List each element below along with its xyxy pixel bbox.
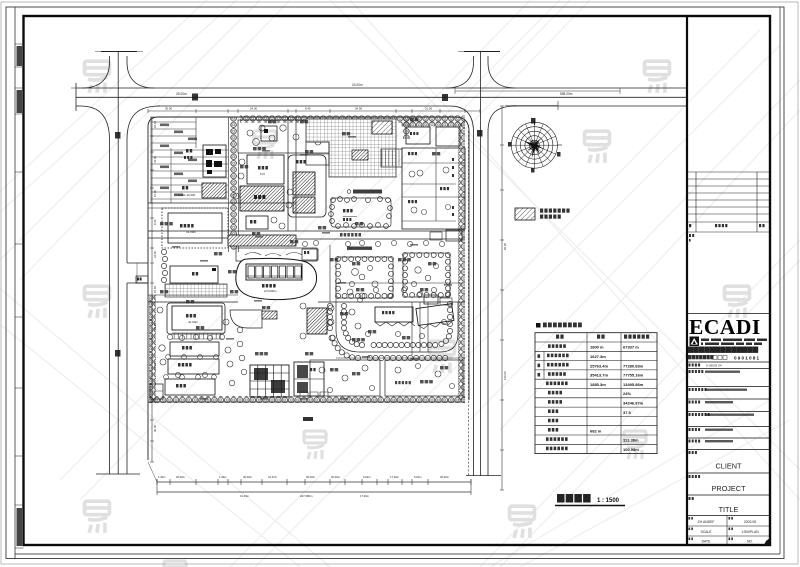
svg-text:1627.3m: 1627.3m [590,354,606,359]
svg-text:30.00m: 30.00m [176,475,186,479]
svg-text:5.00m: 5.00m [414,475,422,479]
svg-text:SCALE: SCALE [700,530,712,534]
svg-text:100.98m: 100.98m [623,447,639,452]
svg-text:31.00m: 31.00m [240,494,250,498]
svg-text:NO.: NO. [747,540,753,544]
svg-text:24%: 24% [623,391,631,396]
svg-text:24.00: 24.00 [250,107,257,111]
svg-text:37.5: 37.5 [623,410,632,415]
svg-text:1885.3m: 1885.3m [590,382,606,387]
svg-text:9.00m: 9.00m [363,475,371,479]
svg-text:2003.05: 2003.05 [744,520,756,524]
svg-text:8.40: 8.40 [153,219,157,225]
svg-text:41.00m: 41.00m [188,320,199,324]
svg-text:31.47m: 31.47m [268,475,278,479]
svg-text:1800 m: 1800 m [590,345,604,350]
svg-text:1.000~16.000: 1.000~16.000 [178,193,196,197]
svg-text:30.00m: 30.00m [306,475,316,479]
svg-text:15.00: 15.00 [153,190,157,197]
svg-text:a=5.000m: a=5.000m [264,289,277,293]
svg-text:17.30m: 17.30m [360,494,370,498]
svg-text:ZH.ANDEF: ZH.ANDEF [698,520,715,524]
svg-text:15.60: 15.60 [153,286,157,293]
svg-text:18.40: 18.40 [153,121,157,128]
svg-text:DATE: DATE [702,540,712,544]
svg-text:1:500PLAN: 1:500PLAN [741,530,759,534]
svg-text:PROJECT: PROJECT [711,484,746,493]
svg-text:30.00m: 30.00m [331,475,341,479]
svg-text:77280.83m: 77280.83m [623,363,644,368]
svg-text:25.00m: 25.00m [176,92,187,96]
svg-text:24.00: 24.00 [153,251,157,258]
svg-text:1.40m: 1.40m [219,475,227,479]
svg-text:0901081: 0901081 [734,356,760,361]
svg-text:30.00: 30.00 [165,107,172,111]
svg-text:CLIENT: CLIENT [716,462,742,471]
svg-text:S-05033 04: S-05033 04 [706,364,722,368]
svg-text:24.00m: 24.00m [352,83,363,87]
svg-text:41.00m: 41.00m [186,230,197,234]
svg-text:21.00: 21.00 [425,107,432,111]
svg-text:682 m: 682 m [590,428,602,433]
svg-text:1.40m: 1.40m [158,475,166,479]
svg-text:30.00: 30.00 [153,425,157,432]
svg-text:ECADI: ECADI [689,315,761,339]
svg-text:17.30m: 17.30m [390,475,400,479]
svg-text:21.00: 21.00 [153,363,157,370]
svg-text:41.00: 41.00 [153,156,157,163]
svg-text:13495.86m: 13495.86m [623,382,644,387]
svg-text:8.40: 8.40 [305,107,311,111]
svg-text:35413.7m: 35413.7m [590,373,608,378]
svg-text:227.080m: 227.080m [300,494,313,498]
svg-text:34246.87m: 34246.87m [623,401,644,406]
svg-text:TITLE: TITLE [719,505,739,514]
svg-text:598.00m: 598.00m [560,92,573,96]
svg-text:30.00m: 30.00m [243,475,253,479]
svg-text:F=6: F=6 [260,172,265,176]
svg-text:1 : 1500: 1 : 1500 [597,498,620,504]
svg-text:82.00: 82.00 [503,243,507,250]
svg-text:30.00m: 30.00m [440,475,450,479]
svg-text:77755.16m: 77755.16m [623,373,644,378]
svg-text:120.00: 120.00 [503,371,507,380]
svg-text:34.00: 34.00 [355,107,362,111]
svg-text:41.00: 41.00 [153,323,157,330]
svg-text:25763.4m: 25763.4m [590,363,608,368]
svg-text:67337 m: 67337 m [623,345,639,350]
svg-text:113.38m: 113.38m [623,438,639,443]
